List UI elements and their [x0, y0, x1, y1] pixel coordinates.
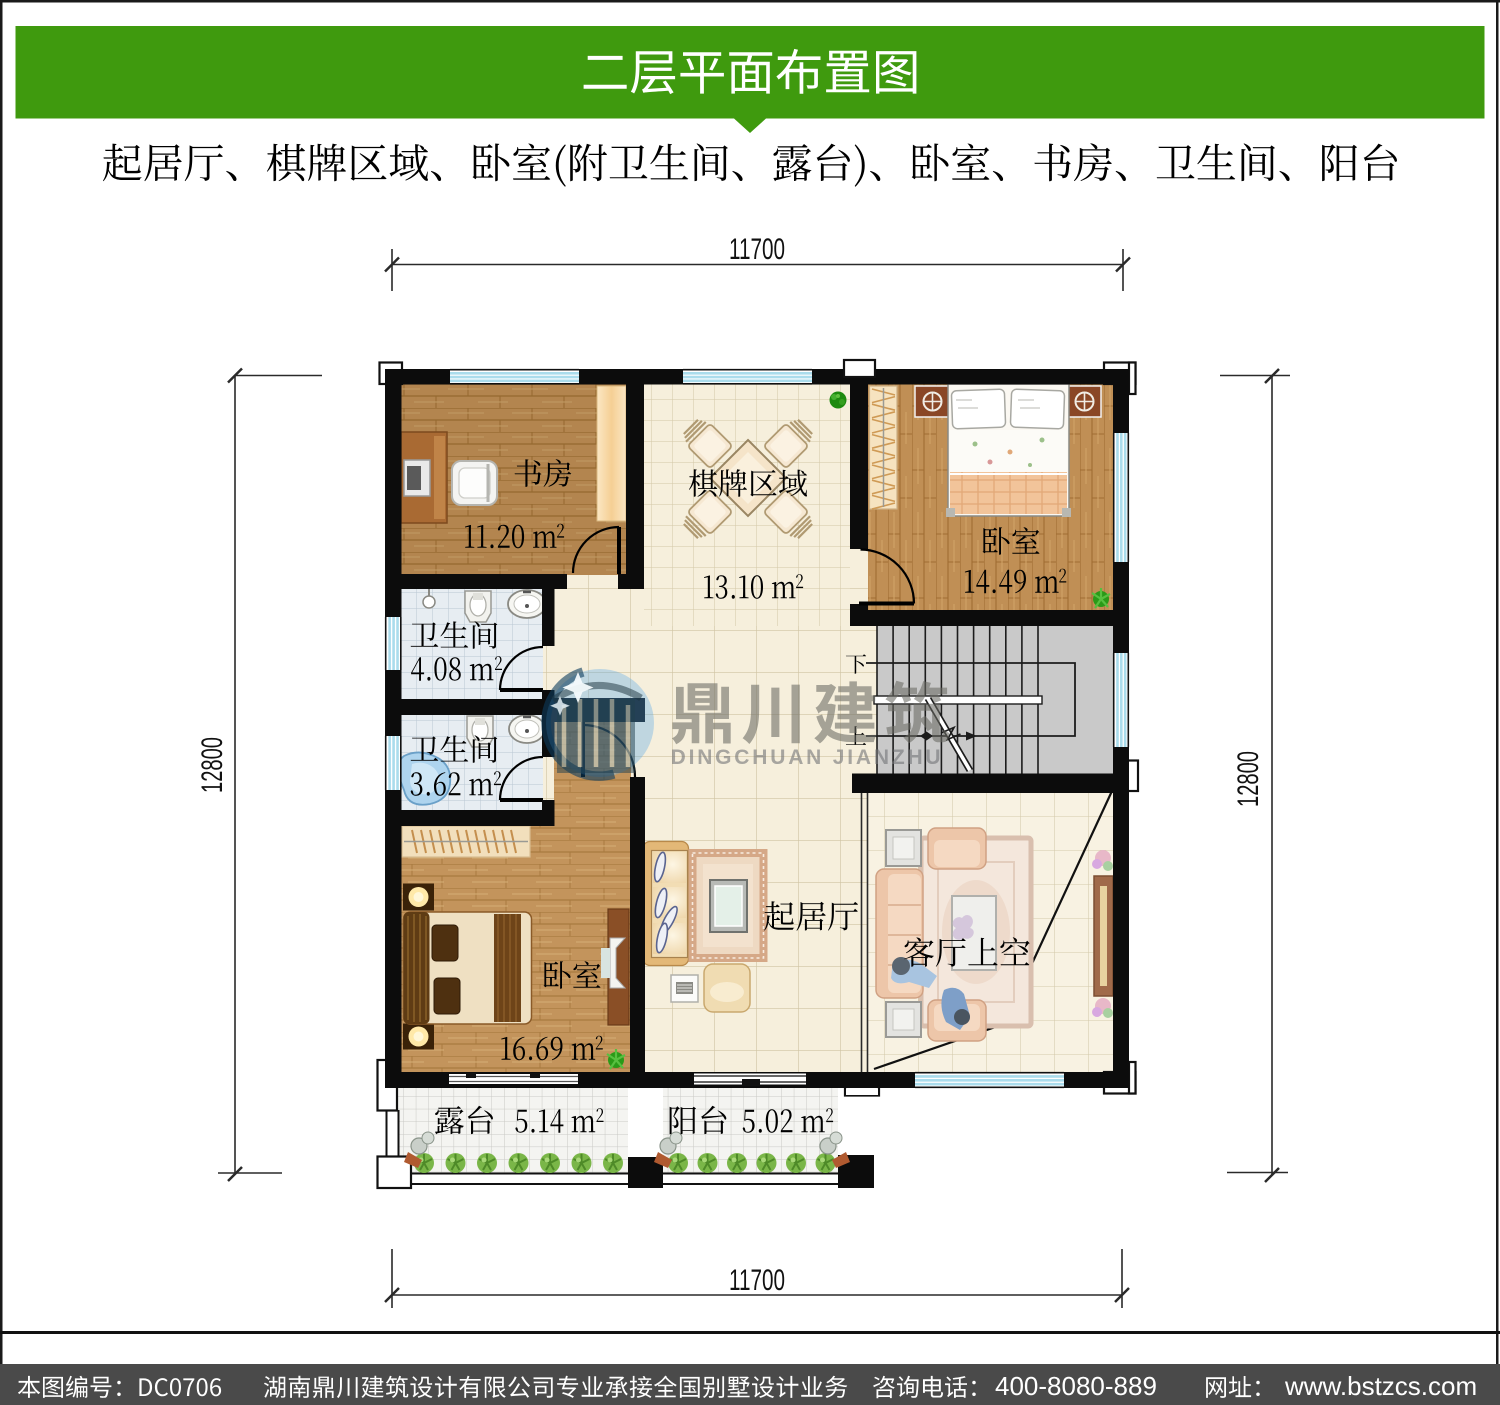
svg-text:12800: 12800	[1232, 751, 1265, 807]
svg-text:400-8080-889: 400-8080-889	[995, 1371, 1157, 1401]
svg-text:11700: 11700	[729, 233, 785, 266]
svg-text:12800: 12800	[196, 737, 229, 793]
svg-text:www.bstzcs.com: www.bstzcs.com	[1284, 1371, 1477, 1401]
svg-text:11700: 11700	[729, 1264, 785, 1297]
svg-text:DINGCHUAN JIANZHU: DINGCHUAN JIANZHU	[671, 746, 944, 769]
